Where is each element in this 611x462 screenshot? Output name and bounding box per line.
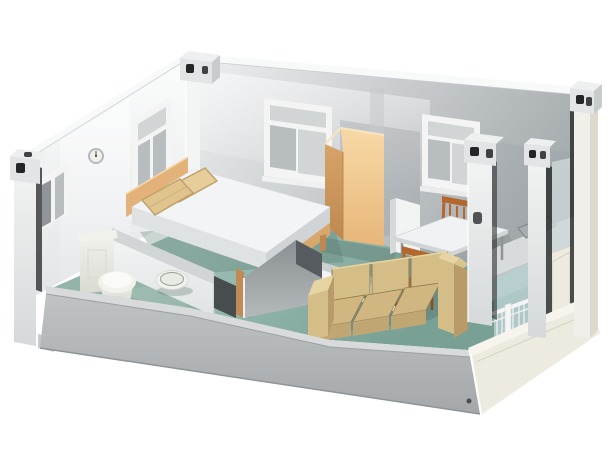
armrest-outer [308, 290, 328, 340]
bed-leg [320, 234, 326, 252]
render-canvas: 3D cutaway rendering of a one-bedroom pr… [0, 0, 611, 462]
post-shaft [14, 162, 36, 346]
window-pane [42, 180, 51, 227]
fitting-hole [540, 151, 546, 159]
partition-end-side [390, 198, 396, 254]
wall-clock: Round wall clock [89, 149, 103, 163]
basin-inner [161, 273, 184, 286]
window-pane [428, 139, 450, 181]
post-groove [492, 160, 497, 320]
armrest-outer [454, 264, 468, 338]
window-pane [55, 172, 64, 220]
toilet-seat [102, 272, 132, 288]
fitting-hole [186, 64, 194, 73]
fitting-hole [576, 95, 584, 104]
corner-fitting-front [524, 144, 550, 168]
east-corner-post: Corner posts with container corner fitti… [570, 81, 602, 338]
post-shaft [528, 150, 546, 338]
fitting-hole [16, 163, 25, 173]
post-groove [36, 166, 42, 292]
fitting-hole [586, 97, 592, 106]
armrest-inner [438, 258, 454, 334]
base-bolt-hole [467, 399, 472, 404]
fitting-hole [202, 66, 208, 74]
fitting-hole [529, 150, 536, 158]
post-shaft [574, 96, 590, 338]
fitting-hole [24, 152, 32, 157]
fitting-hole [486, 149, 493, 158]
wardrobe-front-face [341, 128, 384, 246]
window-pane [298, 129, 326, 177]
window-back-a: Sliding window on back wall (left) [262, 98, 334, 190]
post-side [590, 92, 598, 338]
open-door-edge [236, 268, 244, 318]
post-side-hole [473, 212, 482, 224]
container-house-render: 3D cutaway rendering of a one-bedroom pr… [0, 0, 611, 462]
clock-center [95, 155, 97, 157]
fitting-hole [470, 147, 479, 156]
glass-groove [546, 165, 552, 335]
post-shaft [468, 156, 492, 326]
window-pane [270, 125, 296, 171]
